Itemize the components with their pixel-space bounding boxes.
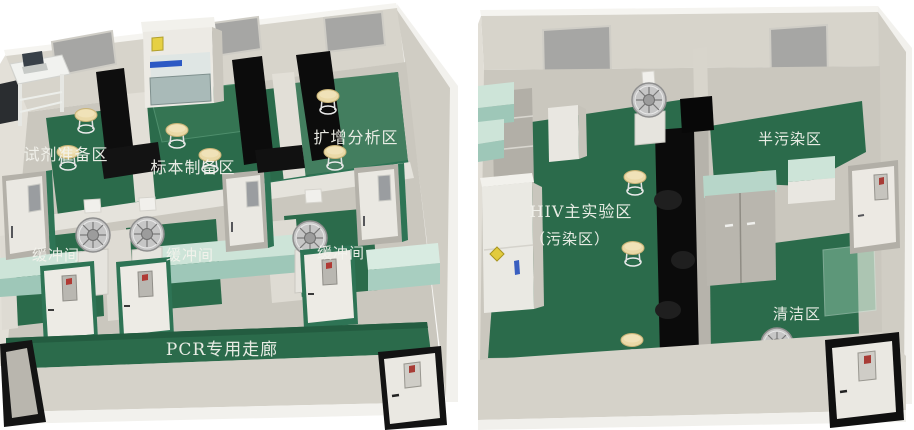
zone-label-buffer-3: 缓冲间 [317,244,365,262]
bench-texture [654,190,682,210]
warning-sticker [152,37,163,51]
zone-label-semi-contaminated: 半污染区 [758,130,822,148]
counter-top [478,119,504,144]
wall-vent [84,199,101,213]
zone-label-buffer-1: 缓冲间 [32,246,80,264]
hiv-lab-svg: 半污染区 HIV主实验区 （污染区） 清洁区 [478,0,914,430]
buffer-door [40,261,98,346]
buffer-door [116,257,174,341]
monitor-bench [0,80,20,124]
pcr-lab-svg: 试剂准备区 标本制备区 扩增分析区 缓冲间 缓冲间 缓冲间 PCR专用走廊 [0,0,458,430]
glass-panel [823,244,876,316]
counter-top [478,82,514,108]
wall-window [324,12,385,52]
pcr-lab-rendering: 试剂准备区 标本制备区 扩增分析区 缓冲间 缓冲间 缓冲间 PCR专用走廊 [0,0,458,430]
bench-texture [671,251,695,269]
wall-vent [139,197,156,211]
wall-vent [305,189,322,203]
centrifugal-fan-icon [76,218,110,252]
entry-door [378,346,447,430]
storage-cabinet [703,170,777,286]
pass-box-front [788,178,835,204]
hiv-lab-rendering: 半污染区 HIV主实验区 （污染区） 清洁区 [478,0,914,430]
white-cabinet [548,105,579,162]
centrifugal-fan-icon [632,83,666,117]
bench-texture [655,301,681,319]
entry-door [825,332,904,428]
centrifugal-fan-icon [130,217,164,251]
zone-label-hiv-main-sub: （污染区） [530,230,610,248]
biosafety-cabinet [141,17,224,108]
zone-label-reagent-prep: 试剂准备区 [23,145,108,164]
zone-label-clean: 清洁区 [773,305,821,323]
upper-door [222,169,274,252]
side-door [848,160,900,254]
zone-label-specimen-prep: 标本制备区 [150,158,235,177]
black-equipment-box [680,96,714,133]
zone-label-corridor: PCR专用走廊 [166,340,278,360]
label-sticker [514,260,520,275]
pass-box-top [788,156,835,182]
dual-lab-floorplan-figure: 试剂准备区 标本制备区 扩增分析区 缓冲间 缓冲间 缓冲间 PCR专用走廊 [0,0,914,430]
upper-door [354,163,408,246]
zone-label-buffer-2: 缓冲间 [166,246,214,264]
zone-label-hiv-main: HIV主实验区 [530,202,633,221]
white-cabinet-side [578,105,587,159]
black-bench-strip [655,127,699,358]
zone-label-amplification: 扩增分析区 [313,128,398,147]
divider-wall-upper [693,47,708,100]
